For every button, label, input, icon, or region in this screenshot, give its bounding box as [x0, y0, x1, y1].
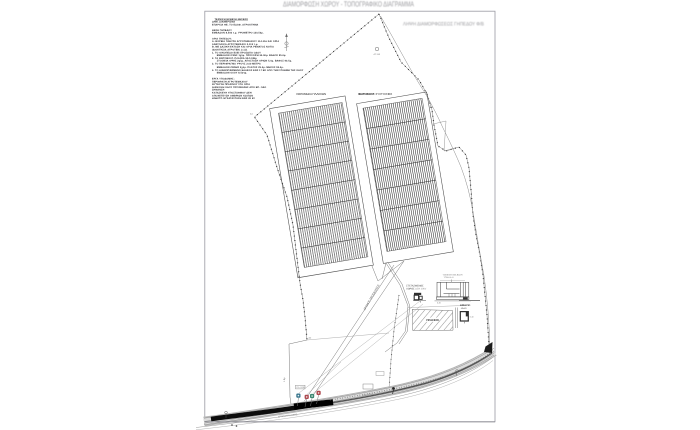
svg-text:ΠΡΑΣΙΝΟ: ΠΡΑΣΙΝΟ	[426, 318, 439, 322]
svg-text:ΤΟΜΗ Α-Α': ΤΟΜΗ Α-Α'	[444, 276, 455, 279]
svg-text:ΑΓ.114: ΑΓ.114	[374, 53, 381, 56]
svg-text:40x40: 40x40	[461, 307, 468, 310]
svg-text:2. ΤΑ ΦΩΤΟΒΟΛΤ. ΠΛΑΙΣΙΑ 99.5 k: 2. ΤΑ ΦΩΤΟΒΟΛΤ. ΠΛΑΙΣΙΑ 99.5 kWp	[212, 57, 257, 60]
svg-text:ΛΗΨΗ ΔΙΑΜΟΡΦΩΣΕΩΣ ΓΗΠΕΔΟΥ Φ/Β: ΛΗΨΗ ΔΙΑΜΟΡΦΩΣΕΩΣ ΓΗΠΕΔΟΥ Φ/Β	[403, 21, 485, 27]
svg-text:ΔΙΑΝΟΙΞΗ ΟΔΟΥ ΠΡΟΣΒΑΣΗΣ ΑΠΟ ΕΠ: ΔΙΑΝΟΙΞΗ ΟΔΟΥ ΠΡΟΣΒΑΣΗΣ ΑΠΟ ΕΠ. ΟΔΟ	[212, 86, 266, 89]
svg-text:ΤΣΙΜΕΝΤΕΝΙΑ ΒΑΣΗ: ΤΣΙΜΕΝΤΕΝΙΑ ΒΑΣΗ	[443, 274, 463, 277]
svg-text:3. ΤΟ ΠΕΡΙΦΡΑΓΜΑ ΥΨΟΥΣ 2.00 ΜΕ: 3. ΤΟ ΠΕΡΙΦΡΑΓΜΑ ΥΨΟΥΣ 2.00 ΜΕΤΡΑ	[212, 63, 261, 66]
svg-text:ΕΜΒΑΔΟΝ ΟΛΟΥ 8.5στρ.: ΕΜΒΑΔΟΝ ΟΛΟΥ 8.5στρ.	[217, 72, 247, 75]
svg-text:ΧΩΡΟΣ ΔΕΗ 20kV: ΧΩΡΟΣ ΔΕΗ 20kV	[406, 288, 426, 291]
svg-text:ΙΔΙΟΚΤΗΣΙΑ ΑΓΡΟΤΕΜ. 2.111: ΙΔΙΟΚΤΗΣΙΑ ΑΓΡΟΤΕΜ. 2.111	[212, 49, 247, 52]
svg-text:Β. ΜΕ ΔΑΣΙΚΗ ΕΚΤΑΣΗ ΚΑΙ ΟΡΙΑ Ρ: Β. ΜΕ ΔΑΣΙΚΗ ΕΚΤΑΣΗ ΚΑΙ ΟΡΙΑ ΡΕΜΑΤΟΣ ΝΟΤ…	[212, 46, 274, 49]
svg-text:ΔΗΜ. ΔΙΑΜΕΡΙΣΜΑ: ΔΗΜ. ΔΙΑΜΕΡΙΣΜΑ	[212, 21, 235, 24]
svg-text:ΕΜΒΑΔΟΝ ΟΨΗΣ 1χλμ. ΠΡΟΣΟΨΗ 34.: ΕΜΒΑΔΟΝ ΟΨΗΣ 1χλμ. ΠΡΟΣΟΨΗ 34.00μ. ΒΑΘΟΣ…	[217, 54, 287, 57]
svg-text:ΣΥΣΤΟΙΧΙΕΣ: ΣΥΣΤΟΙΧΙΕΣ	[376, 92, 393, 96]
svg-text:ΚΑΤΑΣΚΕΥΗ ΥΠΟΣΤΑΘΜΟΥ ΔΕΗ: ΚΑΤΑΣΚΕΥΗ ΥΠΟΣΤΑΘΜΟΥ ΔΕΗ	[212, 92, 252, 95]
svg-text:ΕΜΒΑΔΟΝ 8.500 τ.μ. ΥΨΟΜΕΤΡΟ 12: ΕΜΒΑΔΟΝ 8.500 τ.μ. ΥΨΟΜΕΤΡΟ 120.50μ.	[212, 32, 264, 35]
svg-text:ΦΥΤΕΥΣΗ ΠΡΑΣΙΝΟΥ ΣΤΑ ΟΡΙΑ: ΦΥΤΕΥΣΗ ΠΡΑΣΙΝΟΥ ΣΤΑ ΟΡΙΑ	[212, 83, 250, 86]
svg-text:ΕΠΑΡΧΙΑ ΘΕ. ΤΟ ΕΔΑΦ. ΑΓΡΟΚΤΗΜΑ: ΕΠΑΡΧΙΑ ΘΕ. ΤΟ ΕΔΑΦ. ΑΓΡΟΚΤΗΜΑ	[212, 23, 259, 26]
svg-text:ΣΗΜΑΝΣΗ: ΣΗΜΑΝΣΗ	[212, 89, 225, 92]
svg-text:ΟΡΙΑ ΓΗΠΕΔΟΥ:: ΟΡΙΑ ΓΗΠΕΔΟΥ:	[212, 37, 232, 40]
svg-text:ΦΡΕΑΤΙΟ: ΦΡΕΑΤΙΟ	[460, 304, 470, 307]
svg-text:ΣΤΟΙΧΕΙΑ ΟΨΗΣ 2χλμ. ΑΠΟΣΤΑΣΗ Ο: ΣΤΟΙΧΕΙΑ ΟΨΗΣ 2χλμ. ΑΠΟΣΤΑΣΗ ΟΡΙΩΝ 5.0μ.…	[217, 60, 292, 63]
svg-text:4. ΤΟ ΔΙΑΜΟΡΦΩΜΕΝΟ ΕΔΑΦΟΣ ΕΩΣ: 4. ΤΟ ΔΙΑΜΟΡΦΩΜΕΝΟ ΕΔΑΦΟΣ ΕΩΣ 17 ΕΚ ΑΠΟ …	[212, 69, 304, 72]
svg-text:ΕΡΓΑ ΥΠΟΔΟΜΗΣ:: ΕΡΓΑ ΥΠΟΔΟΜΗΣ:	[212, 78, 235, 81]
svg-text:0.40: 0.40	[470, 315, 474, 318]
svg-text:ΠΛ. 8.00: ΠΛ. 8.00	[297, 386, 306, 389]
svg-text:ΠΕΡΙΦΡΑΞΗ ΑΓΡΟΤΕΜΑΧΙΟΥ: ΠΕΡΙΦΡΑΞΗ ΑΓΡΟΤΕΜΑΧΙΟΥ	[212, 80, 248, 83]
svg-text:ΦΩΤΟΒΟΛΤ.: ΦΩΤΟΒΟΛΤ.	[358, 92, 375, 96]
svg-text:ΑΝΑΤΟΛΙΚΑ ΑΓΡΟΤΕΜΑΧΙΟ 2.115 τ.: ΑΝΑΤΟΛΙΚΑ ΑΓΡΟΤΕΜΑΧΙΟ 2.115 τ.μ.	[212, 43, 258, 46]
svg-text:ΤΕΧΝΙΚΗ ΕΚΘΕΣΗ ΘΕΣΕΩΣ: ΤΕΧΝΙΚΗ ΕΚΘΕΣΗ ΘΕΣΕΩΣ	[215, 18, 248, 21]
svg-text:ΕΜΒΑΔΟΝ ΖΩΝΗΣ 3χλμ. ΠΛΑΤΟΣ 25.: ΕΜΒΑΔΟΝ ΖΩΝΗΣ 3χλμ. ΠΛΑΤΟΣ 25.0μ. ΜΗΚΟΣ …	[217, 66, 284, 69]
svg-text:ΔΙΑΜΟΡΦΩΣΗ ΧΩΡΟΥ - ΤΟΠΟΓΡΑΦΙΚΟ: ΔΙΑΜΟΡΦΩΣΗ ΧΩΡΟΥ - ΤΟΠΟΓΡΑΦΙΚΟ ΔΙΑΓΡΑΜΜΑ	[283, 0, 414, 8]
svg-text:Α. ΒΟΡΕΙΑ ΠΛΕΥΡΑ ΑΓΡΟΤΕΜΑΧΙΟΥ: Α. ΒΟΡΕΙΑ ΠΛΕΥΡΑ ΑΓΡΟΤΕΜΑΧΙΟΥ 114-116 ΚΑ…	[212, 40, 279, 43]
svg-text:ΘΕΣΗ ΓΗΠΕΔΟΥ: ΘΕΣΗ ΓΗΠΕΔΟΥ	[212, 29, 232, 32]
svg-text:ΗΛΕΚΤΡ. ΕΓΚΑΤΑΣΤΑΣΗ ΕΩΣ 20 kV: ΗΛΕΚΤΡ. ΕΓΚΑΤΑΣΤΑΣΗ ΕΩΣ 20 kV	[212, 97, 255, 100]
svg-text:ΚΕΡΑΜΙΔΙΑ ΠΛΑΙΣΙΩΝ: ΚΕΡΑΜΙΔΙΑ ΠΛΑΙΣΙΩΝ	[297, 92, 327, 96]
svg-text:ΑΠΟΧΕΤΕΥΣΗ ΟΜΒΡΙΩΝ ΥΔΑΤΩΝ: ΑΠΟΧΕΤΕΥΣΗ ΟΜΒΡΙΩΝ ΥΔΑΤΩΝ	[212, 94, 253, 97]
svg-text:0.20: 0.20	[437, 301, 441, 304]
svg-text:1.5μ: 1.5μ	[283, 377, 286, 382]
svg-text:1. ΤΟ ΟΙΚΟΠΕΔΟ ΕΧΕΙ ΠΡΟΣΩΠΟ ΟΔ: 1. ΤΟ ΟΙΚΟΠΕΔΟ ΕΧΕΙ ΠΡΟΣΩΠΟ ΟΔΟΥ	[212, 51, 261, 54]
